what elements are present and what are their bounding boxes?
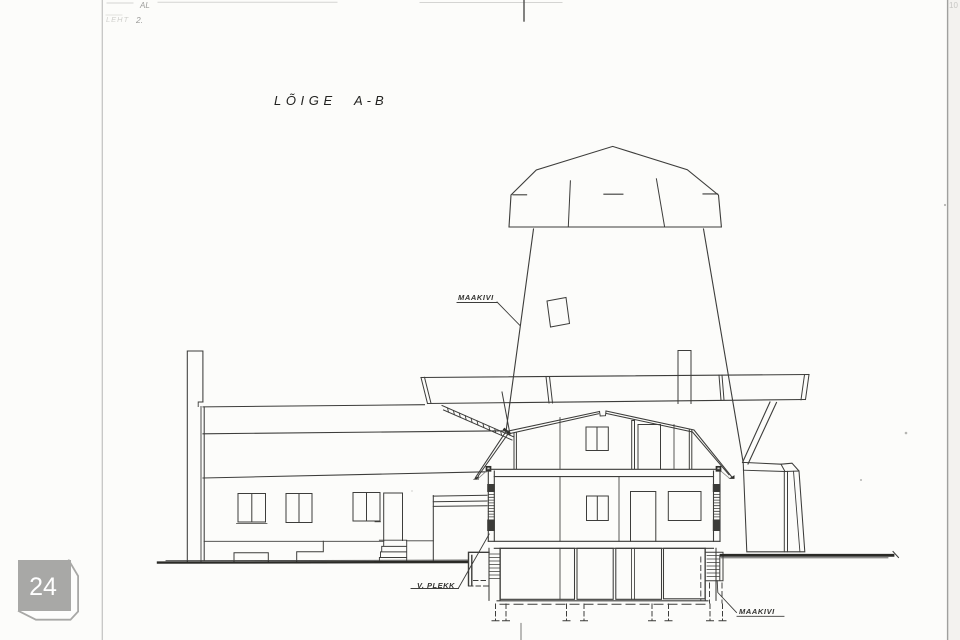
svg-text:2.: 2. xyxy=(135,15,143,25)
svg-text:AL: AL xyxy=(139,1,150,10)
svg-text:MAAKIVI: MAAKIVI xyxy=(739,607,775,616)
svg-text:LEHT: LEHT xyxy=(106,15,130,24)
svg-text:LÕIGE: LÕIGE xyxy=(274,93,337,108)
svg-text:A-B: A-B xyxy=(353,93,388,108)
svg-text:10: 10 xyxy=(949,1,958,10)
svg-text:MAAKIVI: MAAKIVI xyxy=(458,293,494,302)
svg-text:24: 24 xyxy=(29,573,57,601)
